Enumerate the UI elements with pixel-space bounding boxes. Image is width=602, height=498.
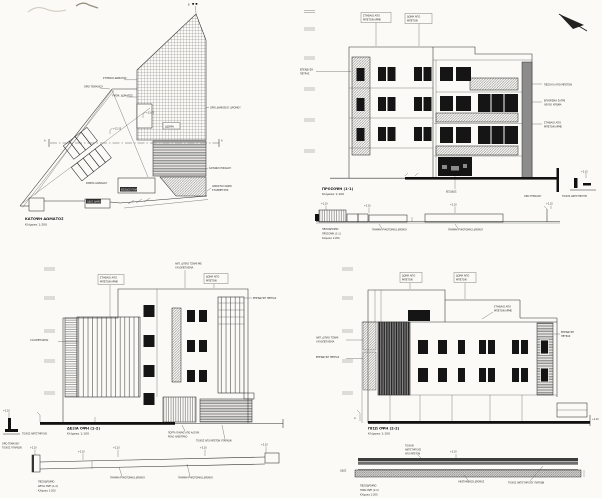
svg-text:ΑΝΤ. ΔΙΠΛΟ ΤΖΑΜΙ: ΑΝΤ. ΔΙΠΛΟ ΤΖΑΜΙ: [316, 337, 339, 340]
curb-level: +2.10: [581, 171, 588, 174]
side-elevation-scale: Κλίμακα 1:100: [67, 432, 89, 436]
rear-elevation-scale: Κλίμακα 1:100: [368, 432, 390, 436]
storefront: ΕΙΣΟΔΟΣ: [438, 157, 472, 194]
svg-text:ΥΦΙΣΤΑΜΕΝΟΣ ΔΡΟΜΟΣ: ΥΦΙΣΤΑΜΕΝΟΣ ΔΡΟΜΟΣ: [458, 481, 485, 484]
curtain-wall-panel: [77, 317, 140, 397]
garage-door-striped: [163, 397, 196, 422]
left-label-stone: ΕΠΕΝΔΥΣΗ ΠΕΤΡΑΣ: [316, 356, 363, 359]
svg-text:ΣΤΗΘΑΙΟ ΑΠΟ: ΣΤΗΘΑΙΟ ΑΠΟ: [100, 277, 117, 280]
svg-text:ΜΠΕΤΟΝ: ΜΠΕΤΟΝ: [402, 279, 413, 282]
svg-text:ΚΑΤΩΦΛΙ ΕΙΣΟΔΟΥ: ΚΑΤΩΦΛΙ ΕΙΣΟΔΟΥ: [209, 167, 232, 170]
bottom-notes: ΠΟΡΤΑ ΓΚΑΡΑΖ ΑΠΟ ΑΛΟΥΜ. ΡΟΛΟ ΗΛΕΚΤΡΙΚΟ Τ…: [168, 425, 232, 443]
svg-text:ΜΠΕΤΟΝ ΑΡΜΕ: ΜΠΕΤΟΝ ΑΡΜΕ: [100, 281, 118, 284]
drawing-sheet: B A A ΕΙΣΟΔΟΣ ΓΚΑΡΑΖ ΟΔΟΣ ΔΗΜΟ: [0, 0, 602, 498]
top-label-glass: ΑΝΤ. ΔΙΠΛΟ ΤΖΑΜΙ ΜΕ ΥΑΛΟΠΕΤΑΣΜΑ: [175, 263, 202, 289]
penthouse-window: [408, 310, 430, 321]
street-note: ΟΔΟΣ: [340, 470, 347, 473]
end-level: +2.10: [592, 418, 599, 421]
level-ticks: [342, 268, 353, 394]
svg-text:ΠΕΤΡΑΣ: ΠΕΤΡΑΣ: [300, 73, 310, 76]
front-elevation-title: ΠΡΟΣΟΨΗ (1-1): [322, 187, 354, 191]
left-label-stone: ΕΠΕΝΔΥΣΗ ΠΕΤΡΑΣ: [300, 69, 351, 76]
low-wall-right: [557, 403, 587, 417]
ramp-hatch: [160, 177, 206, 196]
stone-panel-right: [537, 323, 553, 395]
north-mark: B: [188, 4, 190, 7]
retaining-wall-note: ΤΟΙΧΟΣ ΑΝΤΙΣΤΗΡΙΞΗΣ: [562, 195, 587, 198]
level-flag: +2.10: [78, 451, 85, 461]
level-flag: +2.10: [321, 203, 328, 211]
stacked-windows: [144, 289, 158, 405]
level-ticks: [44, 268, 55, 394]
leader-label-road: ΟΡΙΟ ΔΗΜΟΣΙΟΥ ΔΡΟΜΟΥ: [206, 107, 241, 110]
svg-text:ΓΡΑΜΜΗ ΡΥΜΟΤΟΜΙΑΣ ΔΡΟΜΟΥ: ΓΡΑΜΜΗ ΡΥΜΟΤΟΜΙΑΣ ΔΡΟΜΟΥ: [110, 477, 146, 480]
street-line-label: ΓΡΑΜΜΗ ΡΥΜΟΤΟΜΙΑΣ ΔΡΟΜΟΥ: [448, 224, 484, 232]
section-mark-right: A: [221, 140, 223, 143]
top-label-roof: ΔΩΜΑ ΑΠΟ ΜΠΕΤΟΝ: [405, 14, 432, 47]
strip-title-2: ΠΙΣΩ ΟΨΗ (2-2): [360, 489, 379, 492]
svg-text:+2.10: +2.10: [113, 447, 120, 450]
svg-text:ΔΩΜΑ ΑΠΟ: ΔΩΜΑ ΑΠΟ: [402, 275, 415, 278]
label-parapet: ΣΤΗΘΑΙΟ ΑΠΟ ΜΠΕΤΟΝ ΑΡΜΕ: [482, 306, 512, 320]
svg-text:ΣΤΗΘΑΙΟ ΑΠΟ: ΣΤΗΘΑΙΟ ΑΠΟ: [544, 122, 561, 125]
site-plan-title: ΚΑΤΟΨΗ ΔΩΜΑΤΟΣ: [25, 217, 64, 221]
leader-label-entrance: ΚΑΤΩΦΛΙ ΕΙΣΟΔΟΥ: [205, 167, 232, 170]
svg-text:ΣΤΗΘΑΙΟ ΔΩΜΑΤΟΣ: ΣΤΗΘΑΙΟ ΔΩΜΑΤΟΣ: [103, 77, 127, 80]
left-edge-hatch: [363, 322, 376, 390]
front-elevation-scale: Κλίμακα 1:100: [322, 192, 344, 196]
svg-text:ΔΩΜΑ ΑΠΟ: ΔΩΜΑ ΑΠΟ: [407, 16, 420, 19]
top-label-parapet: ΣΤΗΘΑΙΟ ΑΠΟ ΜΠΕΤΟΝ ΑΡΜΕ: [98, 275, 124, 318]
base-wall-striped: [200, 399, 252, 422]
street-label: ΟΔΟΣ ΔΗΜΟΣΙΑ: [87, 201, 105, 204]
svg-text:ΠΕΤΡΑΣ: ΠΕΤΡΑΣ: [561, 335, 571, 338]
road-hatch-band: [355, 470, 581, 477]
detail-level: +2.10: [3, 410, 10, 413]
svg-text:ΥΑΛΟΠΕΤΑΣΜΑ: ΥΑΛΟΠΕΤΑΣΜΑ: [30, 339, 49, 342]
roof-area-label: ΔΩΜΑ: [165, 125, 175, 129]
svg-text:+2.10: +2.10: [200, 447, 207, 450]
svg-text:ΥΑΛΟΠΕΤΑΣΜΑ: ΥΑΛΟΠΕΤΑΣΜΑ: [175, 267, 194, 270]
svg-text:ΔΩΜΑ ΑΠΟ: ΔΩΜΑ ΑΠΟ: [456, 275, 469, 278]
svg-text:ΜΠΕΤΟΝ ΑΡΜΕ: ΜΠΕΤΟΝ ΑΡΜΕ: [363, 19, 381, 22]
strip-title-1: ΠΕΖΟΔΡΟΜΙΟ: [322, 228, 339, 231]
svg-text:+2.10: +2.10: [30, 447, 37, 450]
top-label-roof-b: ΔΩΜΑ ΑΠΟ ΜΠΕΤΟΝ: [454, 273, 476, 300]
svg-text:ΤΟΙΧΟΣ ΥΠΑΡΧΩΝ: ΤΟΙΧΟΣ ΥΠΑΡΧΩΝ: [2, 447, 22, 450]
svg-text:ΟΡΙΟ ΤΕΜΑΧΙΟΥ: ΟΡΙΟ ΤΕΜΑΧΙΟΥ: [2, 443, 20, 446]
svg-text:ΣΤΗΘΑΙΟ ΑΠΟ: ΣΤΗΘΑΙΟ ΑΠΟ: [363, 15, 380, 18]
svg-text:ΓΡΑΜΜΗ ΡΥΜΟΤΟΜΙΑΣ ΔΡΟΜΟΥ: ΓΡΑΜΜΗ ΡΥΜΟΤΟΜΙΑΣ ΔΡΟΜΟΥ: [448, 229, 484, 232]
svg-text:ΣΤΗΘΑΙΟ ΑΠΟ: ΣΤΗΘΑΙΟ ΑΠΟ: [494, 306, 511, 309]
side-wall-band: [522, 62, 532, 178]
windows-row-upper: [418, 340, 528, 354]
svg-text:ΜΠΕΤΟΝ: ΜΠΕΤΟΝ: [456, 279, 467, 282]
svg-text:ΕΠΕΝΔΥΣΗ: ΕΠΕΝΔΥΣΗ: [561, 331, 574, 334]
side-strip-section: +2.10 +2.10 +2.10 +2.10 +2.10 ΓΡΑΜΜΗ ΡΥΜ…: [30, 444, 279, 493]
strip-title-2: ΔΕΞΙΑ ΟΨΗ (1-2): [38, 485, 58, 488]
svg-text:ΓΡΑΜΜΗ ΡΥΜΟΤΟΜΙΑΣ ΔΡΟΜΟΥ: ΓΡΑΜΜΗ ΡΥΜΟΤΟΜΙΑΣ ΔΡΟΜΟΥ: [178, 477, 214, 480]
leader-label-balcony: ΣΤΗΘΑΙΟ ΑΠΟ ΜΠΕΤΟΝ ΑΡΜΕ: [532, 122, 562, 129]
front-strip-section: +2.10 +2.10 +2.10 +2.10 ΓΡΑΜΜΗ ΡΥΜΟΤΟΜΙΑ…: [315, 203, 560, 241]
svg-text:ΓΡΑΜΜΗ ΡΥΜΟΤΟΜΙΑΣ ΔΡΟΜΟΥ: ΓΡΑΜΜΗ ΡΥΜΟΤΟΜΙΑΣ ΔΡΟΜΟΥ: [372, 229, 408, 232]
svg-text:+2.10: +2.10: [261, 444, 268, 447]
north-flag-icon: B: [188, 3, 197, 14]
strip-title-1: ΠΕΖΟΔΡΟΜΙΟ: [38, 481, 55, 484]
svg-text:ΣΤΑΘΜΕΥΣΗΣ: ΣΤΑΘΜΕΥΣΗΣ: [212, 189, 229, 192]
svg-text:+2.10: +2.10: [78, 451, 85, 454]
left-notes: ΤΟΙΧΟΣ ΑΝΤΙΣΤΗΡΙΞΗΣ ΟΡΙΟ ΤΕΜΑΧΙΟΥ ΤΟΙΧΟΣ…: [2, 433, 47, 450]
windows-row-lower: [418, 368, 528, 382]
svg-text:ΜΠΕΤΟΝ: ΜΠΕΤΟΝ: [407, 20, 418, 23]
strip-striped-block: [319, 210, 346, 222]
level-flag: +2.10: [261, 444, 268, 454]
svg-text:ΜΠΕΤΟΝ: ΜΠΕΤΟΝ: [206, 280, 217, 283]
side-elevation: ΣΤΗΘΑΙΟ ΑΠΟ ΜΠΕΤΟΝ ΑΡΜΕ ΑΝΤ. ΔΙΠΛΟ ΤΖΑΜΙ…: [2, 263, 283, 493]
site-plan-scale: Κλίμακα 1:200: [25, 223, 47, 227]
side-elevation-title: ΔΕΞΙΑ ΟΨΗ (1-2): [67, 427, 100, 431]
stone-strip: [172, 308, 181, 382]
entrance-label: ΕΙΣΟΔΟΣ: [446, 191, 457, 194]
street-line-label: ΓΡΑΜΜΗ ΡΥΜΟΤΟΜΙΑΣ ΔΡΟΜΟΥ: [178, 464, 214, 480]
left-block-windows: [378, 67, 432, 141]
street-line-label: ΓΡΑΜΜΗ ΡΥΜΟΤΟΜΙΑΣ ΔΡΟΜΟΥ: [110, 467, 146, 480]
right-label-stone: ΕΠΕΝΔΥΣΗ ΠΕΤΡΑΣ: [244, 297, 277, 300]
leader-label-plaster: ΕΠΙΧΡΙΣΜΑ ΣΑΓΡΕ ΛΕΥΚΟ ΧΡΩΜΑ: [532, 100, 566, 107]
rear-elevation-title: ΠΙΣΩ ΟΨΗ (2-2): [368, 427, 400, 431]
svg-text:ΟΡΙΟ ΔΗΜΟΣΙΟΥ ΔΡΟΜΟΥ: ΟΡΙΟ ΔΗΜΟΣΙΟΥ ΔΡΟΜΟΥ: [210, 107, 241, 110]
balcony-parapet-top: [470, 78, 518, 90]
window-pairs: [187, 310, 207, 382]
svg-text:ΡΟΛΟ ΗΛΕΚΤΡΙΚΟ: ΡΟΛΟ ΗΛΕΚΤΡΙΚΟ: [168, 436, 188, 439]
svg-text:ΤΟΙΧΟΣ ΑΠΟ ΜΠΕΤΟΝ ΥΠΑΡΧΩΝ: ΤΟΙΧΟΣ ΑΠΟ ΜΠΕΤΟΝ ΥΠΑΡΧΩΝ: [196, 440, 232, 443]
north-arrow-icon: [559, 14, 587, 31]
svg-text:ΑΝΤ. ΔΙΠΛΟ ΤΖΑΜΙ ΜΕ: ΑΝΤ. ΔΙΠΛΟ ΤΖΑΜΙ ΜΕ: [175, 263, 202, 266]
top-label-roof-a: ΔΩΜΑ ΑΠΟ ΜΠΕΤΟΝ: [400, 273, 422, 290]
svg-text:ΠΕΖΟΥΛΙ ΑΠΟ ΜΠΕΤΟΝ: ΠΕΖΟΥΛΙ ΑΠΟ ΜΠΕΤΟΝ: [544, 84, 572, 87]
street-box: ΟΔΟΣ ΔΗΜΟΣΙΑ: [86, 199, 105, 204]
garage-entry-label: ΕΙΣΟΔΟΣ ΓΚΑΡΑΖ: [121, 189, 140, 192]
svg-text:ΥΑΛΟΠΕΤΑΣΜΑ: ΥΑΛΟΠΕΤΑΣΜΑ: [316, 341, 335, 344]
dark-striped-block: [378, 322, 410, 395]
svg-text:+2.10: +2.10: [321, 203, 328, 206]
roof-band-striped: [153, 141, 206, 176]
leader-label-ledge: ΠΕΖΟΥΛΙ ΑΠΟ ΜΠΕΤΟΝ: [532, 84, 572, 87]
strip-title-3: Κλίμακα 1:200: [322, 237, 340, 240]
paper-smudge-dark: [76, 3, 98, 8]
top-label-roof: ΔΩΜΑ ΑΠΟ ΜΠΕΤΟΝ: [204, 274, 228, 289]
ramp-label: ΡΑΜΠΑ ΚΑΘΟΔΟΥ: [86, 182, 108, 185]
rear-strip-section: ΤΟΙΧΑΚΙ ΑΝΤΙΣΤΗΡΙΞΗΣ ΑΠΟ ΜΠΕΤΟΝ +2.10 ΟΔ…: [340, 445, 584, 497]
level-flag-roof: +12.35: [110, 128, 122, 135]
strip-title-3: Κλίμακα 1:200: [360, 494, 378, 497]
leader-label-plot-boundary: ΟΡΙΟ ΤΕΜΑΧΙΟΥ: [84, 86, 110, 90]
svg-text:A: A: [354, 417, 356, 420]
svg-text:+2.10: +2.10: [450, 451, 457, 454]
ground-line: +2.10 A: [354, 410, 599, 426]
stair-windows: [357, 68, 365, 141]
architectural-drawing: B A A ΕΙΣΟΔΟΣ ΓΚΑΡΑΖ ΟΔΟΣ ΔΗΜΟ: [0, 0, 602, 498]
site-plan: B A A ΕΙΣΟΔΟΣ ΓΚΑΡΑΖ ΟΔΟΣ ΔΗΜΟ: [20, 3, 241, 227]
plot-boundary-note: ΟΡΙΟ ΤΕΜΑΧΙΟΥ: [524, 195, 542, 198]
balcony-parapet-mid: [436, 113, 518, 122]
level-flag: +2.10: [364, 205, 371, 214]
level-ticks: [304, 11, 315, 153]
curb-detail: +2.10: [570, 171, 596, 191]
svg-text:ΤΟΙΧΟΣ ΑΝΤΙΣΤΗΡΙΞΗΣ ΥΠΑΡΧΩΝ: ΤΟΙΧΟΣ ΑΝΤΙΣΤΗΡΙΞΗΣ ΥΠΑΡΧΩΝ: [508, 482, 545, 485]
front-elevation: ΕΙΣΟΔΟΣ +2.10 ΟΡΙΟ ΤΕΜΑΧΙΟΥ ΤΟΙΧΟΣ ΑΝΤΙΣ…: [300, 11, 596, 241]
svg-text:ΕΠΕΝΔΥΣΗ: ΕΠΕΝΔΥΣΗ: [300, 69, 313, 72]
section-mark-left: A: [44, 140, 46, 143]
svg-text:+2.10: +2.10: [364, 205, 371, 208]
svg-text:+2.10: +2.10: [546, 203, 553, 206]
garage-box: ΕΙΣΟΔΟΣ ΓΚΑΡΑΖ: [118, 178, 155, 193]
svg-text:ΤΟΙΧΑΚΙ: ΤΟΙΧΑΚΙ: [405, 445, 414, 448]
level-flag: +2.10: [30, 447, 37, 456]
section-flag-a: A: [354, 410, 360, 421]
svg-text:ΑΝΟΙΚΤΟΙ ΧΩΡΟΙ: ΑΝΟΙΚΤΟΙ ΧΩΡΟΙ: [212, 185, 232, 188]
setback-lines: [23, 90, 150, 204]
street-line-label: ΓΡΑΜΜΗ ΡΥΜΟΤΟΜΙΑΣ ΔΡΟΜΟΥ: [372, 224, 408, 232]
svg-text:ΔΩΜΑ ΑΠΟ: ΔΩΜΑ ΑΠΟ: [206, 276, 219, 279]
svg-text:+2.10: +2.10: [450, 204, 457, 207]
top-label-parapet: ΣΤΗΘΑΙΟ ΑΠΟ ΜΠΕΤΟΝ ΑΡΜΕ: [361, 13, 391, 47]
svg-text:+12.35: +12.35: [113, 128, 122, 131]
parking-stalls: [58, 127, 112, 181]
rear-elevation: +2.10 A ΔΩΜΑ ΑΠΟ ΜΠΕΤΟΝ ΔΩΜΑ ΑΠΟ ΜΠΕΤΟΝ …: [316, 268, 599, 497]
svg-text:ΕΠΙΧΡΙΣΜΑ ΣΑΓΡΕ: ΕΠΙΧΡΙΣΜΑ ΣΑΓΡΕ: [544, 100, 566, 103]
hstripe-strip: [65, 318, 77, 397]
leader-label-roofslab: ΥΨΟΜ. ΔΩΜΑΤΟΣ: [112, 95, 137, 98]
svg-text:ΤΟΙΧΟΣ ΑΝΤΙΣΤΗΡΙΞΗΣ: ΤΟΙΧΟΣ ΑΝΤΙΣΤΗΡΙΞΗΣ: [22, 433, 47, 436]
level-flag: +2.10: [113, 447, 120, 458]
strip-title-3: Κλίμακα 1:200: [38, 490, 56, 493]
svg-text:ΜΠΕΤΟΝ ΑΡΜΕ: ΜΠΕΤΟΝ ΑΡΜΕ: [494, 310, 512, 313]
balcony-parapet-low: [436, 146, 518, 155]
svg-text:+13.05: +13.05: [146, 112, 155, 115]
svg-text:ΑΝΤΙΣΤΗΡΙΞΗΣ: ΑΝΤΙΣΤΗΡΙΞΗΣ: [405, 449, 421, 452]
svg-text:ΛΕΥΚΟ ΧΡΩΜΑ: ΛΕΥΚΟ ΧΡΩΜΑ: [544, 104, 562, 107]
level-flag: +2.10: [450, 204, 457, 214]
svg-text:ΕΠΕΝΔΥΣΗ ΠΕΤΡΑΣ: ΕΠΕΝΔΥΣΗ ΠΕΤΡΑΣ: [253, 297, 277, 300]
strip-title-2: ΠΡΟΣΟΨΗ (1-1): [322, 233, 341, 236]
svg-text:ΜΠΕΤΟΝ ΑΡΜΕ: ΜΠΕΤΟΝ ΑΡΜΕ: [544, 126, 562, 129]
level-flag: +2.10: [546, 203, 553, 210]
left-label-glass: ΑΝΤ. ΔΙΠΛΟ ΤΖΑΜΙ ΥΑΛΟΠΕΤΑΣΜΑ: [316, 337, 363, 344]
leader-label-parking: ΑΝΟΙΚΤΟΙ ΧΩΡΟΙ ΣΤΑΘΜΕΥΣΗΣ: [207, 185, 232, 192]
svg-text:ΕΠΕΝΔΥΣΗ ΠΕΤΡΑΣ: ΕΠΕΝΔΥΣΗ ΠΕΤΡΑΣ: [316, 356, 340, 359]
paper-smudge: [28, 8, 66, 12]
retaining-wall-detail: +2.10: [3, 410, 20, 435]
strip-title-1: ΠΕΖΟΔΡΟΜΙΟ: [360, 485, 377, 488]
level-flag: +2.10: [450, 451, 457, 459]
leader-label-parapet: ΣΤΗΘΑΙΟ ΔΩΜΑΤΟΣ: [103, 77, 137, 80]
grid-screen-panel: [218, 297, 244, 393]
svg-text:ΠΟΡΤΑ ΓΚΑΡΑΖ ΑΠΟ ΑΛΟΥΜ.: ΠΟΡΤΑ ΓΚΑΡΑΖ ΑΠΟ ΑΛΟΥΜ.: [168, 432, 200, 435]
level-flag: +2.10: [200, 447, 207, 457]
